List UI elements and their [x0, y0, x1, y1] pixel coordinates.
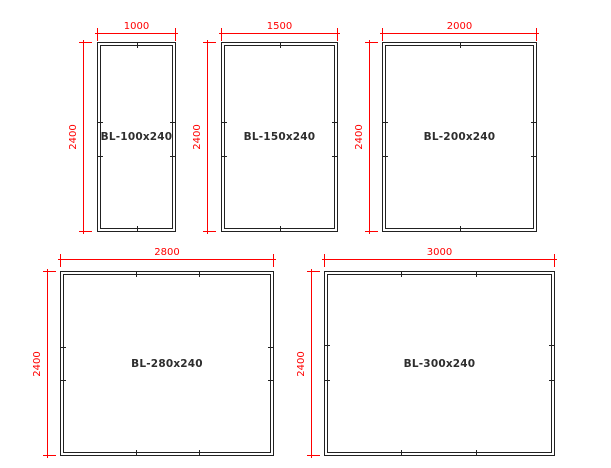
dimension-line	[47, 269, 48, 458]
dimension-tick	[324, 254, 325, 267]
panel-label: BL-300x240	[404, 358, 476, 370]
width-dimension-value: 3000	[427, 248, 452, 258]
dimension-tick	[79, 42, 92, 43]
joint-tick	[401, 450, 402, 455]
joint-tick	[460, 43, 461, 48]
joint-tick	[137, 226, 138, 231]
dimension-line	[95, 33, 178, 34]
panel-outline-bl-200x240: BL-200x240	[382, 42, 537, 232]
drawing-canvas: 1000 2400 BL-100x240 1500 2400 BL-150x24…	[0, 0, 611, 468]
width-dimension-value: 1500	[267, 22, 292, 32]
joint-tick	[325, 345, 330, 346]
dimension-tick	[221, 28, 222, 41]
joint-tick	[549, 380, 554, 381]
joint-tick	[332, 122, 337, 123]
dimension-tick	[60, 254, 61, 267]
panel-label: BL-280x240	[131, 358, 203, 370]
panel-outline-bl-300x240: BL-300x240	[324, 271, 555, 456]
dimension-line	[311, 269, 312, 458]
dimension-tick	[273, 254, 274, 267]
dimension-tick	[203, 231, 216, 232]
joint-tick	[268, 380, 273, 381]
dimension-tick	[97, 28, 98, 41]
joint-tick	[460, 226, 461, 231]
joint-tick	[199, 272, 200, 277]
dimension-tick	[43, 455, 56, 456]
dimension-line	[58, 259, 276, 260]
joint-tick	[170, 122, 175, 123]
dimension-tick	[536, 28, 537, 41]
dimension-tick	[307, 271, 320, 272]
panel-outline-bl-150x240: BL-150x240	[221, 42, 338, 232]
dimension-tick	[175, 28, 176, 41]
joint-tick	[531, 122, 536, 123]
height-dimension-value: 2400	[69, 124, 79, 149]
dimension-tick	[554, 254, 555, 267]
joint-tick	[136, 272, 137, 277]
height-dimension-value: 2400	[33, 351, 43, 376]
joint-tick	[401, 272, 402, 277]
dimension-line	[207, 40, 208, 234]
dimension-line	[322, 259, 557, 260]
panel-label: BL-150x240	[244, 131, 316, 143]
joint-tick	[476, 272, 477, 277]
panel-outline-bl-100x240: BL-100x240	[97, 42, 176, 232]
joint-tick	[332, 156, 337, 157]
joint-tick	[61, 347, 66, 348]
dimension-tick	[79, 231, 92, 232]
joint-tick	[199, 450, 200, 455]
joint-tick	[383, 122, 388, 123]
panel-outline-bl-280x240: BL-280x240	[60, 271, 274, 456]
joint-tick	[98, 156, 103, 157]
joint-tick	[549, 345, 554, 346]
height-dimension-value: 2400	[193, 124, 203, 149]
joint-tick	[98, 122, 103, 123]
height-dimension-value: 2400	[355, 124, 365, 149]
dimension-tick	[337, 28, 338, 41]
dimension-tick	[203, 42, 216, 43]
joint-tick	[268, 347, 273, 348]
dimension-line	[380, 33, 539, 34]
width-dimension-value: 1000	[124, 22, 149, 32]
panel-label: BL-200x240	[424, 131, 496, 143]
joint-tick	[280, 226, 281, 231]
height-dimension-value: 2400	[297, 351, 307, 376]
dimension-line	[219, 33, 340, 34]
joint-tick	[170, 156, 175, 157]
dimension-line	[369, 40, 370, 234]
joint-tick	[136, 450, 137, 455]
width-dimension-value: 2000	[447, 22, 472, 32]
joint-tick	[531, 156, 536, 157]
joint-tick	[61, 380, 66, 381]
joint-tick	[280, 43, 281, 48]
dimension-tick	[43, 271, 56, 272]
joint-tick	[383, 156, 388, 157]
panel-label: BL-100x240	[101, 131, 173, 143]
joint-tick	[222, 122, 227, 123]
dimension-tick	[365, 42, 378, 43]
dimension-line	[83, 40, 84, 234]
joint-tick	[137, 43, 138, 48]
width-dimension-value: 2800	[154, 248, 179, 258]
dimension-tick	[382, 28, 383, 41]
joint-tick	[222, 156, 227, 157]
dimension-tick	[365, 231, 378, 232]
joint-tick	[325, 380, 330, 381]
dimension-tick	[307, 455, 320, 456]
joint-tick	[476, 450, 477, 455]
